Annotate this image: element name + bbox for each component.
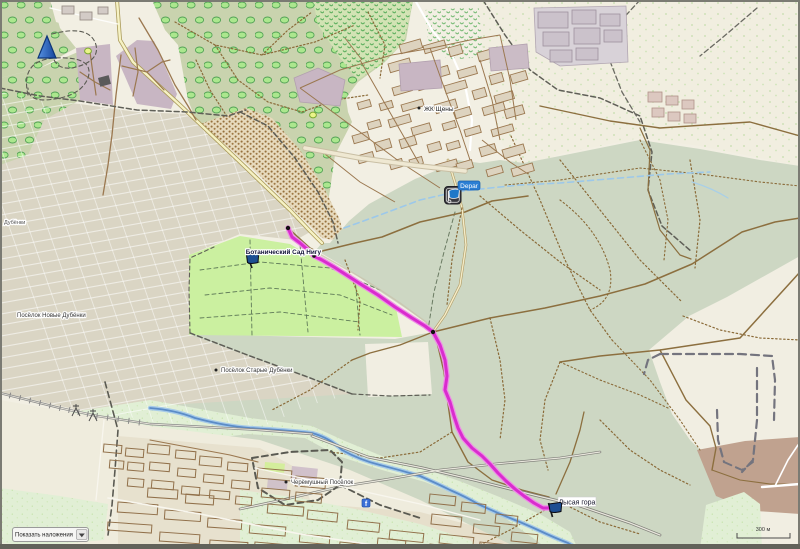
svg-text:Посёлок Новые Дубёнки: Посёлок Новые Дубёнки	[17, 313, 86, 319]
svg-text:Черёмушный Посёлок: Черёмушный Посёлок	[291, 479, 354, 486]
svg-text:Дубёнки: Дубёнки	[4, 220, 25, 226]
svg-text:300 м: 300 м	[756, 527, 771, 533]
svg-text:Лысая гора: Лысая гора	[559, 500, 596, 507]
svg-text:Показать наложения: Показать наложения	[15, 533, 73, 539]
svg-text:Посёлок Старые Дубёнки: Посёлок Старые Дубёнки	[221, 368, 293, 374]
svg-text:Depar: Depar	[460, 183, 479, 190]
svg-text:ЖК Щены: ЖК Щены	[424, 106, 454, 113]
svg-text:Ботанический Сад Нигу: Ботанический Сад Нигу	[246, 248, 322, 256]
